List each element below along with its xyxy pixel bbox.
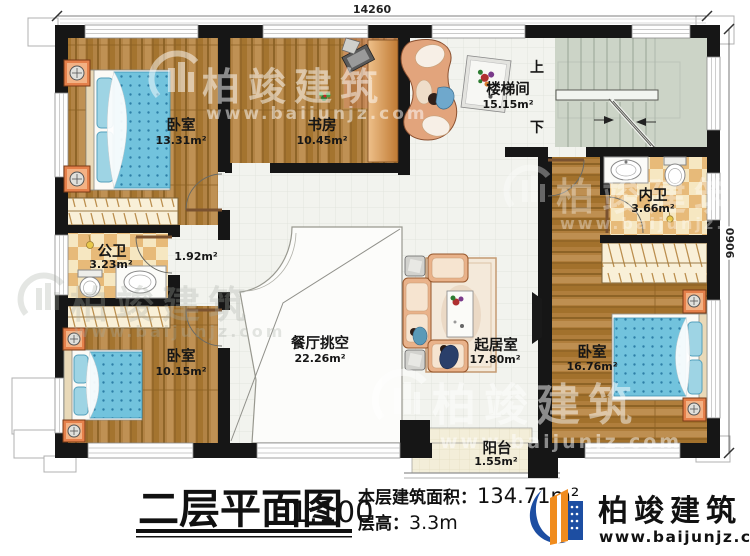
dimension-height-value: 9060	[724, 227, 737, 258]
title-underline	[136, 529, 352, 533]
wall-segment	[680, 443, 720, 458]
double-bed	[64, 350, 142, 420]
window	[632, 25, 690, 38]
side-table	[405, 256, 425, 276]
window	[263, 25, 368, 38]
window	[707, 300, 720, 418]
double-bed	[86, 70, 170, 190]
brand-website: www.baijunjz.com	[599, 528, 750, 546]
window	[55, 235, 68, 295]
window	[707, 57, 720, 130]
room-area-bedroom2: 10.15m²	[155, 365, 206, 378]
wall-segment	[55, 443, 88, 458]
exterior-ledge	[28, 18, 58, 46]
wall-segment	[270, 163, 398, 173]
window	[55, 93, 68, 177]
wall-segment	[193, 443, 257, 458]
nightstand	[64, 166, 90, 192]
window	[88, 443, 193, 458]
exterior-step	[44, 456, 76, 472]
wall-segment	[525, 25, 632, 38]
wall-segment	[586, 147, 707, 157]
watermark-text: 柏竣建筑	[70, 283, 254, 327]
wall-segment	[218, 348, 230, 443]
window	[432, 25, 525, 38]
tv	[532, 292, 542, 344]
window	[257, 443, 400, 458]
floor-area-label: 本层建筑面积：	[358, 487, 477, 508]
room-label-living: 起居室	[473, 336, 518, 354]
pillow	[688, 360, 702, 394]
watermark-text: 柏竣建筑	[432, 380, 640, 431]
watermark-url: www.baijunjz.com	[560, 214, 750, 233]
watermark-url: www.baijunjz.com	[440, 431, 682, 453]
brand-logo: 柏竣建筑 www.baijunjz.com	[530, 489, 750, 546]
exterior-step	[14, 430, 56, 458]
room-area-balcony: 1.55m²	[474, 455, 518, 468]
pillow	[74, 387, 88, 415]
logo-tower-icon	[568, 501, 583, 540]
room-area-stairwell: 15.15m²	[482, 98, 533, 111]
nightstand	[63, 420, 85, 442]
title-block: 二层平面图 1:100 本层建筑面积：134.71m² 层高：3.3m 柏竣建筑…	[136, 484, 750, 546]
room-label-bedroom1: 卧室	[167, 116, 196, 134]
floor-area-info: 本层建筑面积：134.71m²	[358, 484, 579, 508]
room-area-study: 10.45m²	[296, 134, 347, 147]
room-area-public-bath: 3.23m²	[89, 258, 133, 271]
stair-handrail	[556, 90, 658, 100]
floor-plan-canvas: 柏竣建筑 www.baijunjz.com 柏竣建筑 www.baijunjz.…	[0, 0, 750, 551]
logo-building-slit	[557, 494, 561, 544]
dimension-width-value: 14260	[353, 3, 392, 16]
wall-segment	[225, 163, 232, 173]
room-label-study: 书房	[308, 116, 337, 134]
wall-segment	[55, 225, 180, 233]
nightstand	[683, 290, 706, 313]
room-area-bedroom1: 13.31m²	[155, 134, 206, 147]
room-area-living: 17.80m²	[469, 353, 520, 366]
pillow	[688, 322, 702, 356]
floor-height-info: 层高：3.3m	[358, 512, 458, 534]
room-area-ensuite: 3.66m²	[631, 202, 675, 215]
floor-height-label: 层高：	[358, 513, 409, 534]
balcony-post	[400, 420, 430, 453]
room-area-dining-void: 22.26m²	[294, 352, 345, 365]
wall-segment	[505, 147, 548, 157]
floor-height-value: 3.3m	[409, 512, 458, 534]
room-area-bedroom3: 16.76m²	[566, 360, 617, 373]
nightstand	[683, 398, 706, 421]
title-underline	[136, 536, 352, 538]
wall-segment	[707, 130, 720, 173]
watermark-url: www.baijunjz.com	[74, 322, 285, 341]
room-label-bedroom3: 卧室	[578, 343, 607, 361]
window	[85, 25, 198, 38]
wardrobe	[65, 198, 178, 225]
room-area-corridor: 1.92m²	[174, 250, 218, 263]
exterior-bay	[12, 378, 56, 434]
wall-segment	[218, 210, 230, 240]
side-table	[405, 350, 425, 370]
brand-name: 柏竣建筑	[598, 494, 742, 529]
wall-segment	[707, 25, 720, 57]
room-label-bedroom2: 卧室	[167, 347, 196, 365]
room-label-dining-void: 餐厅挑空	[291, 334, 349, 352]
wall-segment	[198, 25, 263, 38]
nightstand	[64, 60, 90, 86]
wardrobe	[602, 243, 707, 283]
stairs-down-label: 下	[530, 120, 544, 136]
stairs-up-label: 上	[530, 60, 544, 76]
room-label-stairwell: 楼梯间	[486, 80, 530, 98]
wall-segment	[600, 235, 707, 243]
pillow	[74, 355, 88, 383]
coffee-table	[447, 291, 473, 337]
watermark-text: 柏竣建筑	[202, 65, 386, 109]
